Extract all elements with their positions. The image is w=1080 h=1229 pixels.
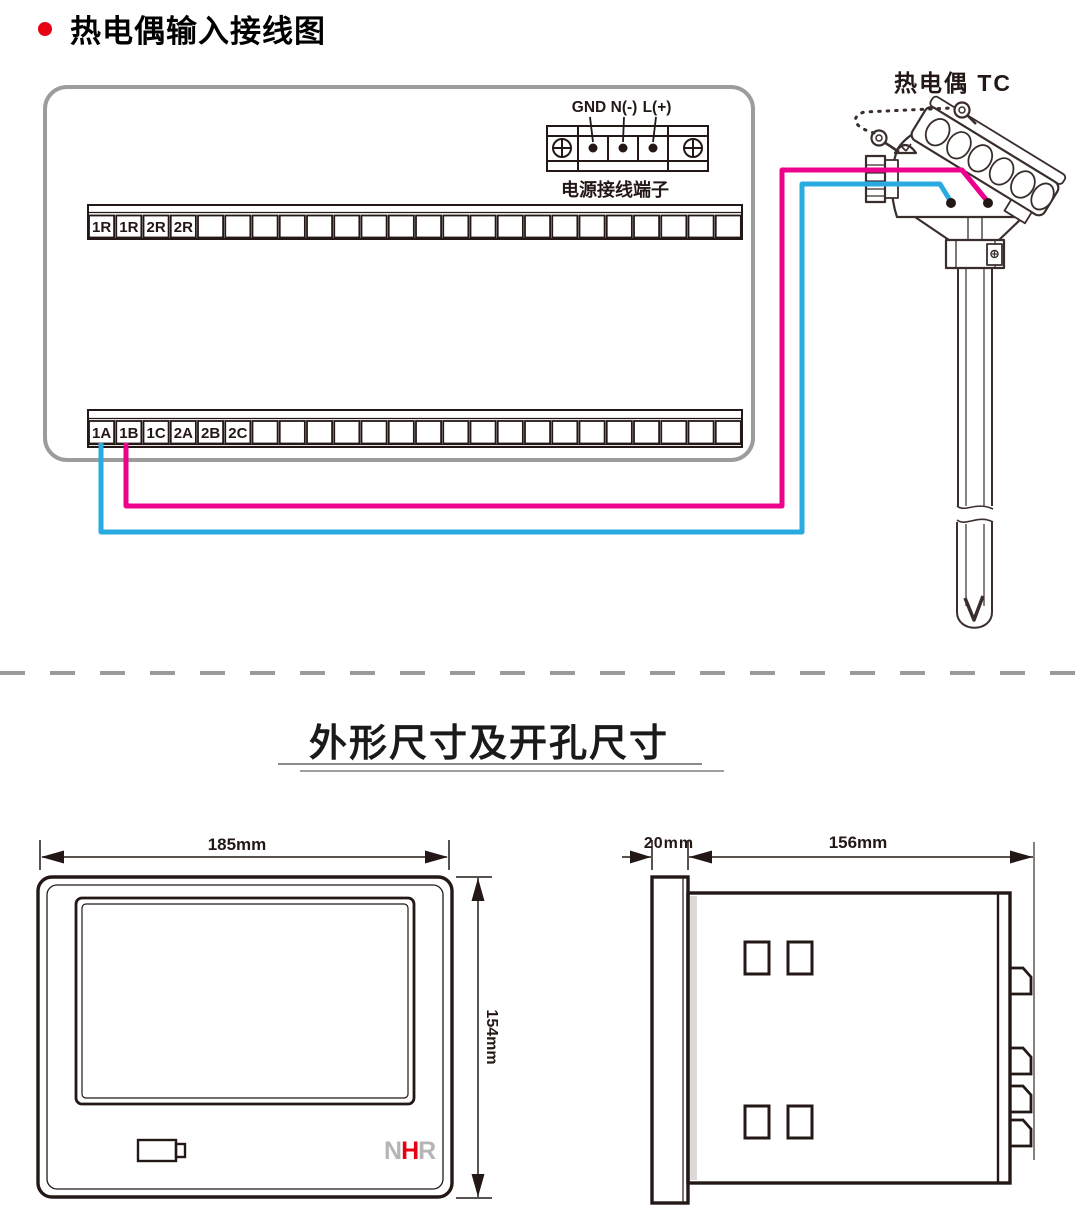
tc-terminal-dot: [983, 198, 993, 208]
screw-icon: [684, 139, 702, 157]
terminal-cell-label: 1A: [92, 425, 111, 442]
dimension-drawings: 185mm 154mm NHR 20mm: [0, 790, 1080, 1229]
terminal-cell-label: 1C: [147, 425, 166, 442]
terminal-cell-label: 2R: [174, 219, 193, 236]
front-width-label: 185mm: [208, 835, 267, 854]
usb-slot: [138, 1140, 185, 1161]
nhr-logo: NHR: [384, 1137, 436, 1165]
side-depth-label: 20mm: [644, 835, 694, 852]
terminal-cell-label: 2A: [174, 425, 193, 442]
wiring-diagram: GNDN(-)L(+) 电源接线端子 1R1R2R2R 1A1B1C2A2B2C: [0, 0, 1080, 690]
side-length-dimension: [689, 842, 1034, 1160]
tc-junction-mark: [965, 596, 983, 620]
power-terminal-caption: 电源接线端子: [561, 179, 669, 200]
thermocouple-drawing: [855, 95, 1066, 628]
power-terminal-label: L(+): [643, 99, 672, 116]
terminal-cell-label: 1B: [119, 425, 138, 442]
front-screen: [76, 898, 414, 1104]
section-title: 外形尺寸及开孔尺寸: [309, 723, 669, 765]
side-body: [688, 893, 1010, 1183]
front-height-label: 154mm: [483, 1009, 500, 1064]
side-view: 20mm 156mm: [622, 833, 1034, 1203]
screw-icon: [553, 139, 571, 157]
section-title-wrap: 外形尺寸及开孔尺寸: [0, 712, 978, 767]
mounting-clips: [1010, 968, 1031, 1146]
power-terminal-label: GND: [572, 99, 606, 116]
title-underline: [300, 770, 724, 772]
power-terminal-label: N(-): [611, 99, 638, 116]
terminal-cell-label: 2R: [147, 219, 166, 236]
screw-icon: [872, 131, 900, 153]
tc-hex-fitting: [866, 156, 898, 202]
terminal-cell-label: 2C: [228, 425, 247, 442]
recorder-panel: [45, 87, 753, 460]
power-terminal-labels: GNDN(-)L(+): [572, 99, 672, 116]
terminal-cell-label: 1R: [92, 219, 111, 236]
tc-terminal-dot: [946, 198, 956, 208]
side-length-label: 156mm: [829, 833, 888, 852]
terminal-cell-label: 2B: [201, 425, 220, 442]
thermocouple-label: 热电偶 TC: [894, 70, 1012, 96]
terminal-cell-label: 1R: [119, 219, 138, 236]
dashed-divider: [0, 671, 1080, 675]
title-underline: [278, 763, 702, 765]
side-vents: [745, 942, 812, 1138]
